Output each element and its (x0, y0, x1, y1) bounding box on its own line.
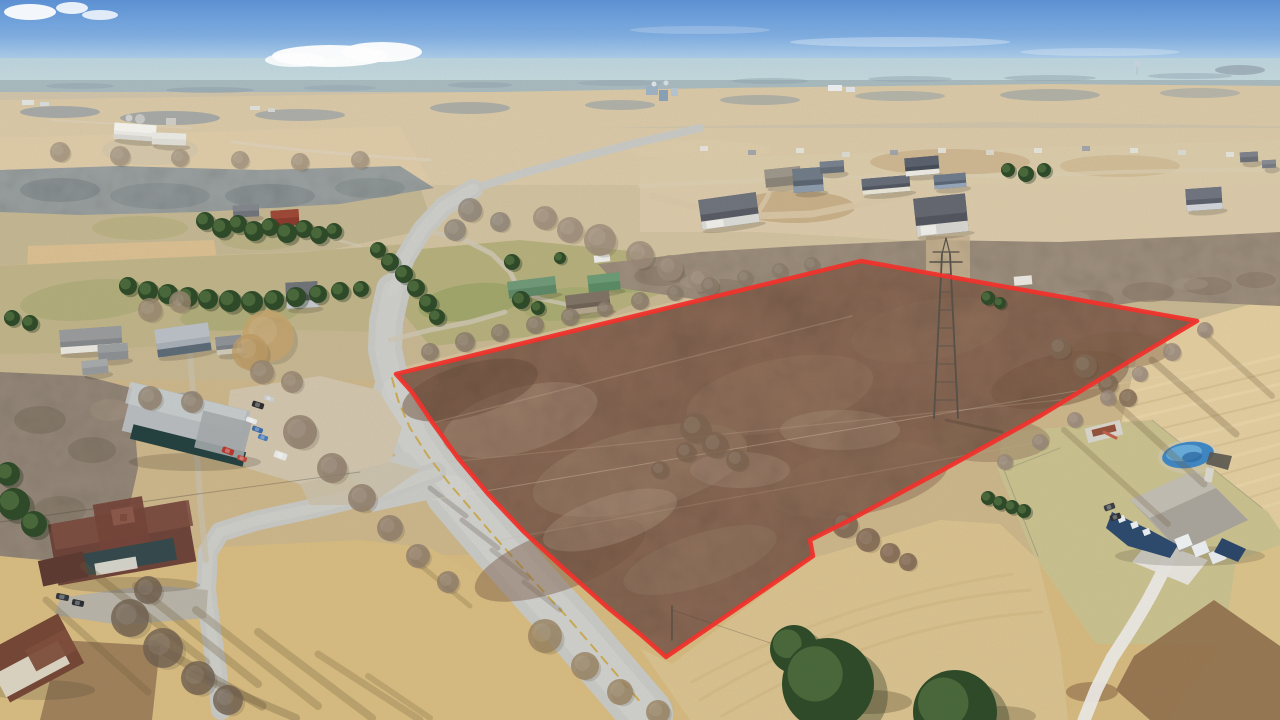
cloud (56, 2, 88, 14)
aerial-photo-frame (0, 0, 1280, 720)
cloud (630, 26, 770, 34)
cloud (790, 37, 1010, 47)
cloud (1020, 48, 1180, 56)
landscape (0, 0, 1280, 720)
cloud (82, 10, 118, 20)
aerial-photo (0, 0, 1280, 720)
cloud (342, 42, 422, 62)
cloud (4, 4, 56, 20)
texture-overlay (0, 60, 1280, 720)
